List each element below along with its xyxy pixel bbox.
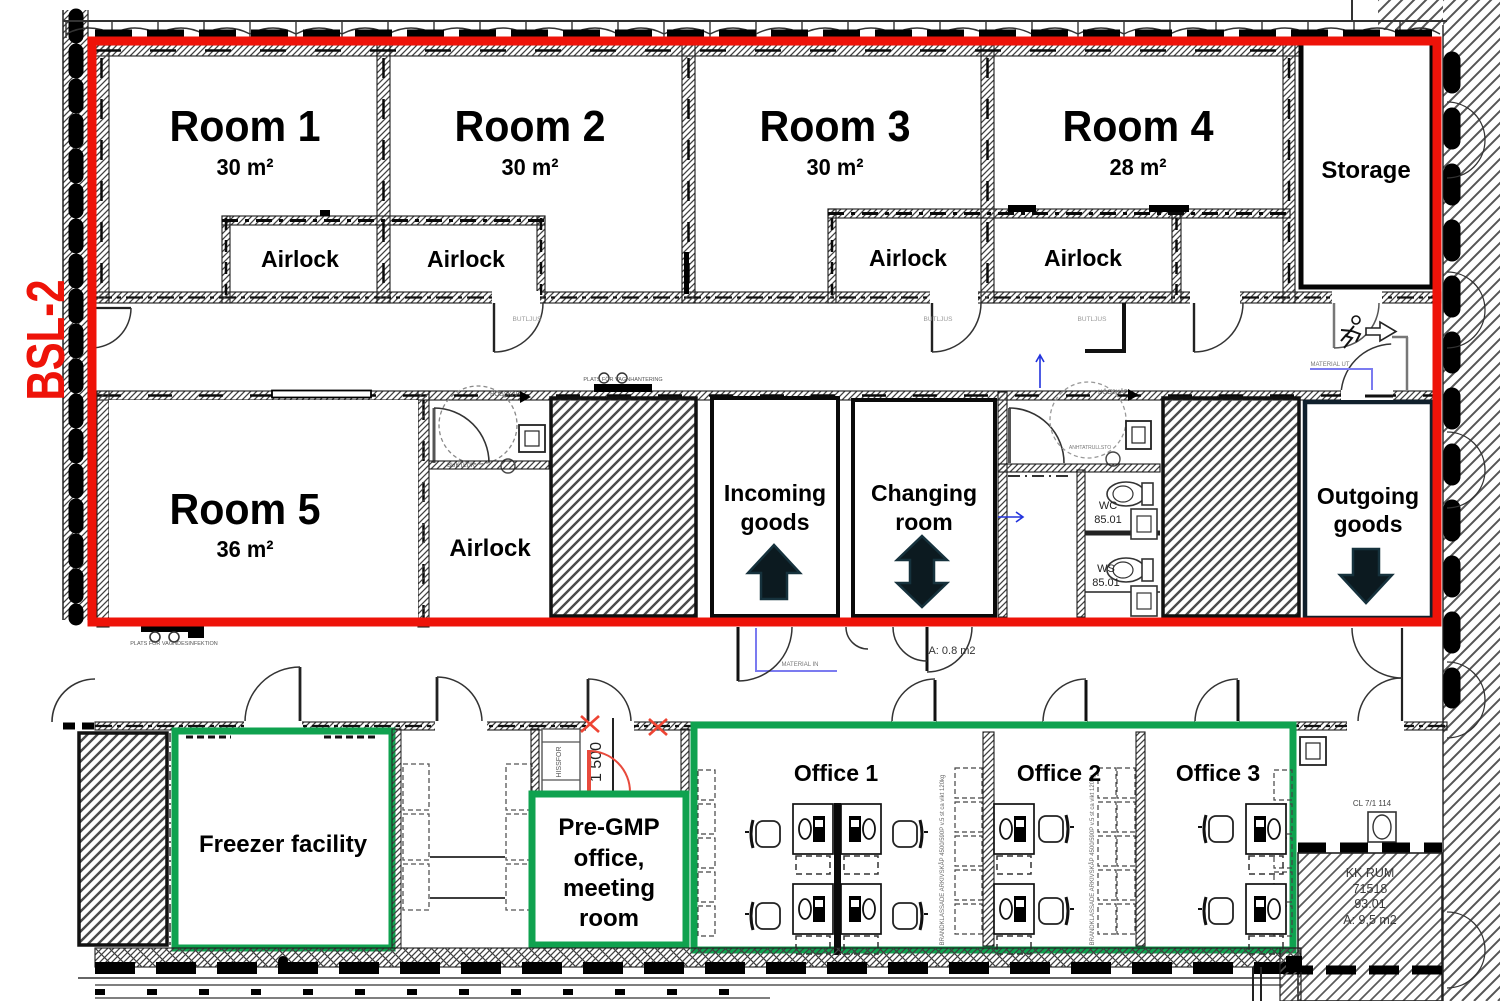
svg-text:BRANDKLASSADE ARKIVSKÅP 4500/5: BRANDKLASSADE ARKIVSKÅP 4500/590P v.5 st… <box>1089 775 1096 946</box>
svg-text:Room 3: Room 3 <box>760 102 911 151</box>
svg-text:93.01: 93.01 <box>1354 897 1385 911</box>
svg-text:HÖGSKÅP: HÖGSKÅP <box>1098 389 1128 396</box>
svg-text:A: 9,5 m2: A: 9,5 m2 <box>1343 913 1397 927</box>
svg-text:BUKTLUK: BUKTLUK <box>447 463 475 469</box>
svg-text:KK RUM: KK RUM <box>1346 866 1395 880</box>
svg-text:28 m²: 28 m² <box>1110 154 1167 180</box>
svg-text:Room 4: Room 4 <box>1063 102 1214 151</box>
svg-text:MATERIAL UT: MATERIAL UT <box>1310 362 1349 368</box>
svg-text:85.01: 85.01 <box>1094 514 1122 526</box>
svg-text:BUTLJUS: BUTLJUS <box>1078 316 1108 323</box>
svg-text:36 m²: 36 m² <box>217 536 274 562</box>
svg-text:30 m²: 30 m² <box>807 154 864 180</box>
svg-text:Storage: Storage <box>1321 157 1410 184</box>
svg-text:PLATS FÖR VAGNDESINFEKTION: PLATS FÖR VAGNDESINFEKTION <box>130 640 218 647</box>
svg-text:BUTLJUS: BUTLJUS <box>513 316 543 323</box>
svg-text:HISSFOR: HISSFOR <box>556 746 563 777</box>
svg-text:Freezer facility: Freezer facility <box>199 831 368 858</box>
svg-text:Airlock: Airlock <box>869 245 947 271</box>
svg-text:71518: 71518 <box>1353 882 1388 896</box>
svg-text:HÖGSKÅP: HÖGSKÅP <box>490 391 520 398</box>
svg-text:Airlock: Airlock <box>261 246 339 272</box>
svg-text:meeting: meeting <box>563 875 655 902</box>
svg-text:WS: WS <box>1097 563 1115 575</box>
svg-text:Airlock: Airlock <box>449 535 531 562</box>
svg-text:Room 5: Room 5 <box>170 485 321 534</box>
svg-text:Airlock: Airlock <box>1044 245 1122 271</box>
svg-text:Office 3: Office 3 <box>1176 760 1260 786</box>
svg-text:PLATS FÖR VAGNHANTERING: PLATS FÖR VAGNHANTERING <box>583 376 662 383</box>
svg-text:Outgoing: Outgoing <box>1317 483 1419 509</box>
svg-text:BUTLJUS: BUTLJUS <box>924 316 954 323</box>
svg-text:Office 1: Office 1 <box>794 760 879 786</box>
svg-text:85.01: 85.01 <box>1092 577 1120 589</box>
svg-text:office,: office, <box>574 845 645 872</box>
svg-text:room: room <box>579 905 639 932</box>
svg-text:CL 7/1 114: CL 7/1 114 <box>1353 799 1392 808</box>
svg-text:Room 1: Room 1 <box>170 102 321 151</box>
svg-text:BRANDKLASSADE ARKIVSKÅP 4500/5: BRANDKLASSADE ARKIVSKÅP 4500/590P v.5 st… <box>939 775 946 946</box>
svg-text:ANHTATRULLSTO: ANHTATRULLSTO <box>1069 445 1111 451</box>
svg-text:BSL-2: BSL-2 <box>16 280 76 401</box>
svg-text:goods: goods <box>1334 511 1403 537</box>
svg-text:room: room <box>895 509 953 535</box>
svg-text:MATERIAL IN: MATERIAL IN <box>781 662 818 668</box>
svg-text:Incoming: Incoming <box>724 480 826 506</box>
svg-text:30 m²: 30 m² <box>502 154 559 180</box>
svg-text:Room 2: Room 2 <box>455 102 606 151</box>
svg-text:A: 0.8 m2: A: 0.8 m2 <box>928 645 975 657</box>
svg-text:Office 2: Office 2 <box>1017 760 1101 786</box>
svg-text:Pre-GMP: Pre-GMP <box>558 814 659 841</box>
svg-text:WC: WC <box>1099 500 1117 512</box>
svg-text:Airlock: Airlock <box>427 246 505 272</box>
svg-text:goods: goods <box>741 509 810 535</box>
svg-text:Changing: Changing <box>871 480 977 506</box>
svg-text:30 m²: 30 m² <box>217 154 274 180</box>
